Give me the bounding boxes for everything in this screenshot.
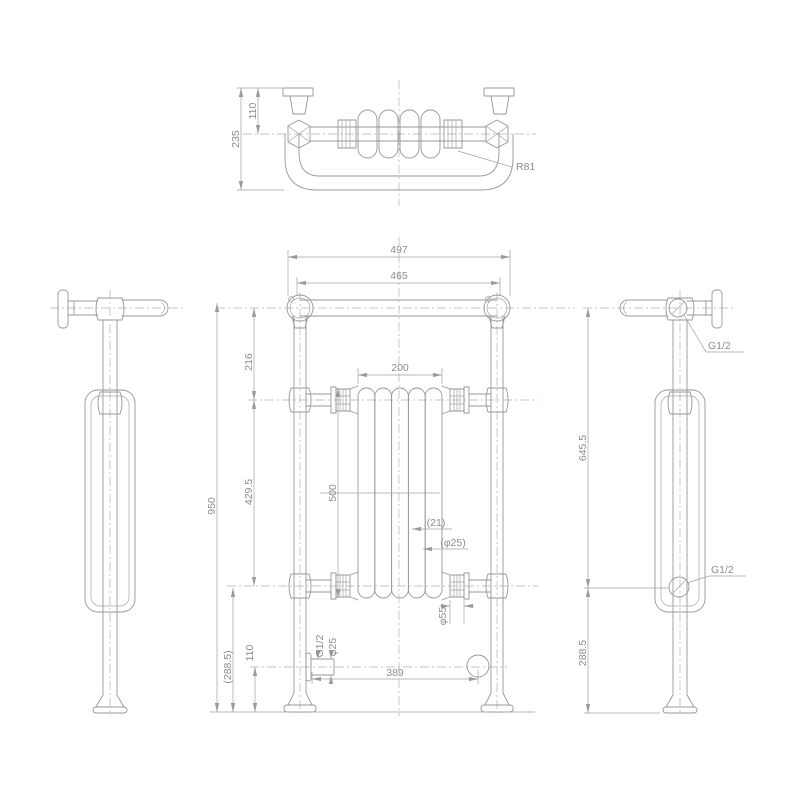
top-view-centerlines bbox=[243, 80, 536, 206]
dim-inlet-dia: φ25 bbox=[327, 638, 339, 657]
right-view-wall-bracket bbox=[687, 290, 722, 328]
dim-overall-width: 497 bbox=[390, 244, 408, 256]
dim-connection-spacing: 429.5 bbox=[243, 479, 255, 505]
dim-inlet-span: 389 bbox=[386, 667, 404, 679]
dim-rail-to-upper-connection: 216 bbox=[243, 353, 255, 371]
dim-lower-connection-to-floor: (288.5) bbox=[222, 650, 234, 683]
dim-rail-length: 465 bbox=[390, 270, 408, 282]
dim-rail-to-lower-connection: 645.5 bbox=[577, 435, 589, 461]
dim-rail-radius: R81 bbox=[516, 161, 535, 173]
dim-inlet-thread: G1/2 bbox=[314, 634, 326, 657]
dim-bushing-dia: φ55 bbox=[437, 607, 449, 626]
dim-column-width: (21) bbox=[427, 517, 446, 529]
front-view-feet bbox=[210, 693, 535, 712]
dim-radiator-width: 200 bbox=[391, 362, 409, 374]
dim-column-tube-dia: (φ25) bbox=[440, 537, 465, 549]
left-view-centerlines bbox=[50, 290, 183, 716]
dim-total-depth: 235 bbox=[230, 130, 242, 148]
dim-radiator-height: 500 bbox=[327, 484, 339, 502]
front-view-centerlines bbox=[216, 237, 575, 716]
right-view-dimensions: G1/2 G1/2 645.5 288.5 bbox=[577, 308, 746, 713]
dim-lower-to-floor-right: 288.5 bbox=[577, 640, 589, 666]
front-view: 497 465 200 216 429.5 950 500 (21) bbox=[206, 237, 575, 716]
left-side-view bbox=[50, 290, 183, 716]
towel-radiator-drawing: 235 110 R81 bbox=[0, 0, 800, 800]
dim-inlet-height: 110 bbox=[244, 644, 256, 661]
right-side-view: G1/2 G1/2 645.5 288.5 bbox=[577, 290, 746, 716]
right-view-rail-end bbox=[620, 300, 668, 316]
top-view: 235 110 R81 bbox=[230, 80, 536, 206]
dim-drain-thread: G1/2 bbox=[711, 564, 734, 576]
left-view-wall-bracket bbox=[58, 290, 98, 328]
top-view-wall-brackets bbox=[283, 88, 514, 114]
dim-vent-thread: G1/2 bbox=[708, 340, 731, 352]
front-view-top-rail bbox=[287, 295, 510, 328]
right-view-centerlines bbox=[583, 290, 735, 716]
dim-wall-to-rail: 110 bbox=[247, 102, 259, 119]
dim-overall-height: 950 bbox=[206, 497, 218, 515]
technical-drawing-page: 235 110 R81 bbox=[0, 0, 800, 800]
left-view-rail-end bbox=[122, 300, 168, 316]
